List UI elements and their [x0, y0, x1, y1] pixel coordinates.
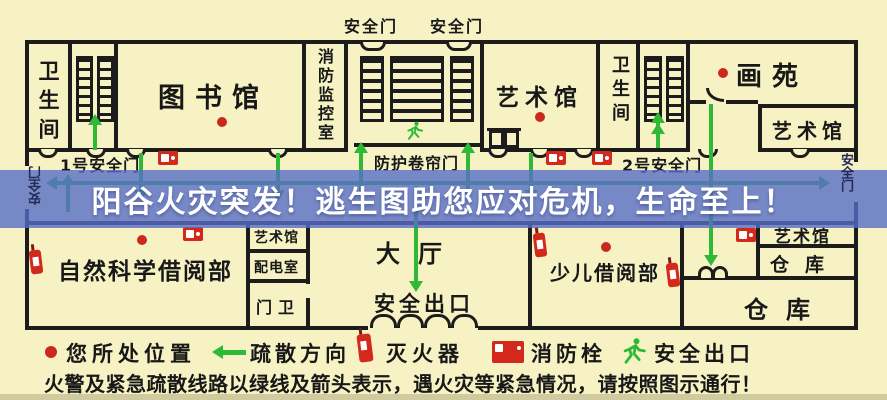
stairs-icon [76, 56, 93, 122]
door-mark [790, 149, 810, 158]
evacuation-map: 卫生间 图书馆 消防监控室 安全门 安全门 艺术馆 卫生间 画苑 艺术馆 1号安… [0, 0, 887, 400]
room-label-restroom-left: 卫生间 [33, 60, 63, 147]
counter-box [504, 130, 519, 148]
room-label-warehouse-large: 仓库 [744, 290, 828, 325]
wall [246, 249, 310, 253]
wall [246, 221, 250, 330]
wall [528, 221, 532, 330]
room-label-power: 配电室 [254, 257, 299, 277]
wall [306, 221, 310, 330]
bookshelf-icon [360, 56, 384, 122]
headline-banner: 阳谷火灾突发！逃生图助您应对危机，生命至上！ [0, 170, 887, 228]
room-label-hall: 大厅 [376, 234, 460, 269]
emergency-exit-runner-icon [404, 120, 424, 140]
door-label-exit-right: 安全门 [836, 153, 855, 192]
legend-exit-label: 安全出口 [654, 338, 754, 368]
wall [25, 152, 29, 166]
stairs-icon [666, 56, 684, 122]
your-location-dot [535, 112, 545, 122]
your-location-dot [217, 117, 227, 127]
bookshelf-icon [450, 56, 474, 122]
evacuation-arrow [656, 133, 660, 135]
wall [726, 100, 758, 104]
stairs-icon [97, 56, 114, 122]
counter-box [489, 130, 504, 148]
legend-exit-runner-icon [618, 336, 648, 364]
door-label-safety-a: 安全门 [344, 13, 398, 37]
evacuation-arrow [93, 124, 97, 150]
door-gap [306, 284, 310, 298]
room-label-art-center: 艺术馆 [496, 78, 583, 112]
room-label-warehouse-small: 仓库 [770, 250, 840, 277]
fire-hydrant-icon [736, 228, 756, 242]
legend-location-label: 您所处位置 [66, 338, 196, 368]
room-label-painting-garden: 画苑 [736, 56, 808, 93]
fire-hydrant-icon [183, 227, 203, 241]
legend-extinguisher-label: 灭火器 [386, 338, 464, 368]
room-label-art-small: 艺术馆 [254, 227, 299, 247]
legend-location-dot [45, 346, 57, 358]
legend-direction-label: 疏散方向 [250, 338, 350, 368]
bottom-edge [0, 394, 887, 400]
room-label-fire-monitor: 消防监控室 [312, 48, 336, 143]
door-mark [38, 149, 58, 158]
room-label-guard: 门卫 [256, 294, 300, 318]
label-hall-exit: 安全出口 [374, 288, 474, 318]
bookshelf-icon [390, 56, 444, 122]
your-location-dot [601, 242, 611, 252]
legend-extinguisher-icon [356, 333, 373, 362]
room-label-children: 少儿借阅部 [550, 257, 660, 286]
door-mark [488, 149, 508, 158]
your-location-dot [718, 68, 728, 78]
legend-hydrant-label: 消防栓 [531, 338, 606, 368]
wall [690, 100, 706, 104]
headline-text: 阳谷火灾突发！逃生图助您应对危机，生命至上！ [92, 177, 796, 221]
legend-direction-arrow [222, 350, 246, 355]
room-label-art-top-right: 艺术馆 [772, 115, 847, 144]
wall [246, 279, 310, 283]
door-mark [574, 149, 594, 158]
fire-hydrant-icon [158, 151, 178, 165]
fire-hydrant-icon [546, 151, 566, 165]
wall [756, 221, 760, 278]
room-label-restroom-right: 卫生间 [606, 55, 632, 127]
legend-note: 火警及紧急疏散线路以绿线及箭头表示，遇火灾等紧急情况，请按照图示通行！ [44, 368, 762, 397]
fire-hydrant-icon [592, 151, 612, 165]
door-label-safety-b: 安全门 [430, 13, 484, 37]
door-mark [712, 266, 728, 278]
your-location-dot [137, 235, 147, 245]
door-label-exit-left: 安全门 [27, 166, 46, 205]
room-label-natural-science: 自然科学借阅部 [58, 252, 233, 286]
room-label-library: 图书馆 [158, 76, 269, 115]
legend-hydrant-icon [492, 341, 524, 363]
